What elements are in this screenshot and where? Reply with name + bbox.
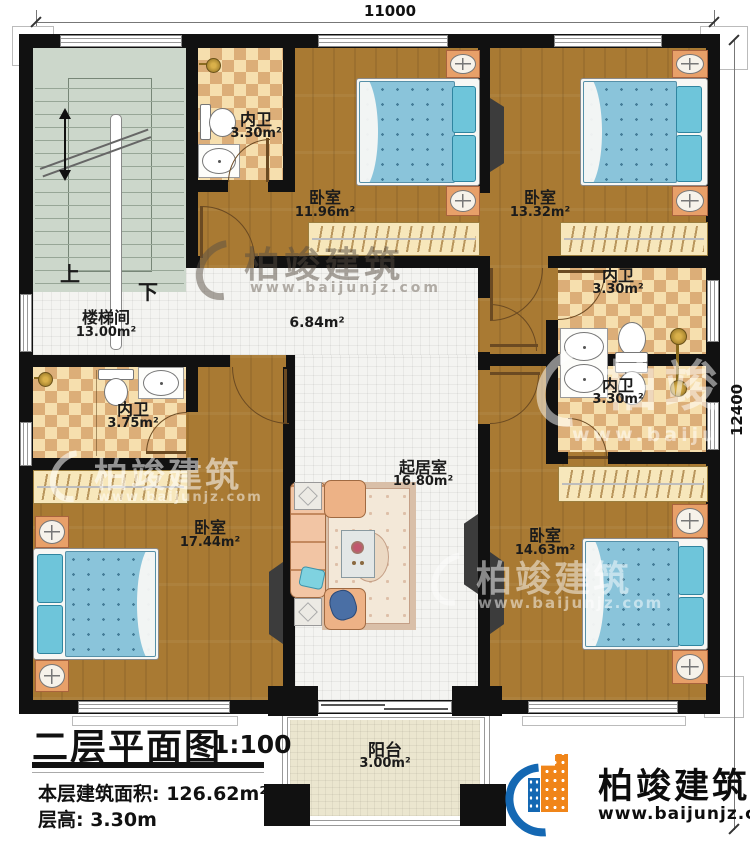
- dimension-right: 12400: [728, 380, 744, 440]
- sink-drain: [160, 382, 163, 385]
- window: [20, 422, 32, 466]
- brand-company-name: 柏竣建筑: [598, 758, 750, 809]
- room-area-stairwell: 13.00m²: [76, 325, 136, 340]
- window-sill: [522, 716, 686, 726]
- bed-sheet-fold: [359, 81, 378, 183]
- pillow: [676, 86, 702, 133]
- pillow: [452, 135, 476, 182]
- nightstand: [672, 504, 708, 538]
- window: [20, 294, 32, 352]
- stair-direction-arrow: [64, 118, 66, 170]
- watermark-website: www.baijunjz.com: [478, 594, 663, 612]
- floor-area-text: 本层建筑面积: 126.62m²: [38, 779, 268, 806]
- wardrobe-pole: [562, 483, 704, 485]
- pillow: [676, 135, 702, 182]
- room-area-bath-rl: 3.30m²: [592, 392, 643, 407]
- nightstand-icon: [39, 520, 65, 544]
- brand-website: www.baijunjz.com: [598, 804, 750, 824]
- nightstand-icon: [450, 190, 476, 212]
- sink: [143, 370, 179, 396]
- balcony-sliding-door: [318, 701, 452, 713]
- nightstand-icon: [450, 54, 476, 74]
- nightstand-icon: [676, 190, 704, 212]
- slider-panel: [321, 704, 385, 706]
- stair-step-line: [35, 88, 184, 89]
- arrow-down-icon: [59, 170, 71, 181]
- nightstand: [446, 50, 480, 78]
- nightstand: [672, 50, 708, 78]
- room-area-bath-ru: 3.30m²: [592, 282, 643, 297]
- watermark-website: www.baijunjz.com: [572, 424, 750, 446]
- arrow-up-icon: [59, 108, 71, 119]
- window: [528, 701, 678, 713]
- wall-bath-tl-bottom: [268, 180, 295, 192]
- room-area-bath-left: 3.75m²: [107, 416, 158, 431]
- window: [707, 280, 719, 342]
- floor-plan-sheet: 上 下: [0, 0, 750, 844]
- room-area-living: 16.80m²: [393, 474, 453, 489]
- wall-bath-tl-bottom: [198, 180, 228, 192]
- wardrobe-pole: [564, 238, 704, 240]
- wall-bath-rl-bottom: [546, 452, 568, 464]
- bed-mattress: [359, 81, 455, 183]
- window: [60, 35, 182, 47]
- sink-drain: [218, 160, 221, 163]
- pillow: [452, 86, 476, 133]
- table-flowers: [351, 541, 364, 554]
- room-area-bedroom-tm: 11.96m²: [295, 205, 355, 220]
- watermark-website: www.baijunjz.com: [250, 280, 441, 296]
- room-area-balcony: 3.00m²: [359, 756, 410, 771]
- table-cup: [352, 561, 356, 565]
- shower-head-icon: [206, 58, 221, 73]
- bed-sheet-fold: [583, 81, 602, 183]
- nightstand: [35, 660, 69, 692]
- floor-height-text: 层高: 3.30m: [38, 805, 157, 832]
- table-cup: [360, 561, 364, 565]
- nightstand: [672, 650, 708, 684]
- bed-sheet-fold: [137, 551, 156, 657]
- brand-logo-tower-icon: [528, 778, 540, 812]
- pillow: [678, 546, 704, 595]
- bed-mattress: [583, 81, 677, 183]
- wall-bedroom-bl-top: [186, 355, 230, 367]
- title-underline-thin: [32, 772, 264, 773]
- room-area-hallway: 6.84m²: [289, 315, 344, 331]
- stair-step-line: [35, 101, 184, 102]
- nightstand-icon: [676, 654, 704, 680]
- slider-panel: [384, 708, 448, 710]
- bed-mattress: [65, 551, 156, 657]
- stair-step-line: [35, 114, 184, 115]
- window: [318, 35, 448, 47]
- armchair: [324, 480, 366, 518]
- room-area-bedroom-br: 14.63m²: [515, 543, 575, 558]
- wall-hall-bath-left: [19, 355, 186, 367]
- window: [554, 35, 662, 47]
- dimension-top: 11000: [340, 2, 440, 20]
- window: [78, 701, 230, 713]
- wall-bath-rl-bottom: [608, 452, 706, 464]
- shower-head-icon: [38, 372, 53, 387]
- nightstand: [446, 186, 480, 216]
- tv: [490, 98, 504, 172]
- balcony-pillar: [268, 686, 318, 716]
- wall-exterior-left: [19, 34, 33, 714]
- wall-bath-left-right: [186, 367, 198, 412]
- stairs-up-label: 上: [60, 258, 80, 287]
- room-area-bath-tl: 3.30m²: [230, 126, 281, 141]
- room-area-bedroom-tr: 13.32m²: [510, 205, 570, 220]
- watermark-website: www.baijunjz.com: [98, 490, 263, 505]
- pillow: [678, 597, 704, 646]
- wall-bath-ru-left: [546, 320, 558, 354]
- wall-bath-tl-right: [283, 48, 295, 184]
- shower-partition: [96, 370, 97, 456]
- title-underline: [32, 762, 264, 768]
- sheet-scale: 1:100: [212, 730, 292, 759]
- wall-stairwell-right: [186, 48, 198, 268]
- stairs-down-label: 下: [138, 276, 158, 305]
- dimension-line-top: [36, 22, 715, 23]
- side-table-decor: [298, 602, 318, 622]
- pillow: [37, 605, 63, 654]
- room-area-bedroom-bl: 17.44m²: [180, 535, 240, 550]
- nightstand: [672, 186, 708, 216]
- wall-living-right: [478, 268, 490, 298]
- wall-bedroom-bl-top: [286, 355, 295, 367]
- nightstand: [35, 516, 69, 548]
- side-table-decor: [298, 486, 318, 506]
- wardrobe: [558, 466, 708, 502]
- nightstand-icon: [676, 508, 704, 534]
- coffee-table: [341, 530, 375, 578]
- pillow: [37, 554, 63, 603]
- balcony-pillar: [264, 784, 310, 826]
- wall-living-right: [478, 352, 490, 370]
- balcony-pillar: [452, 686, 502, 716]
- wardrobe: [560, 222, 708, 256]
- side-table: [294, 598, 322, 626]
- side-table: [294, 482, 322, 510]
- tv: [269, 562, 283, 644]
- nightstand-icon: [676, 54, 704, 74]
- balcony-pillar: [460, 784, 506, 826]
- nightstand-icon: [39, 664, 65, 688]
